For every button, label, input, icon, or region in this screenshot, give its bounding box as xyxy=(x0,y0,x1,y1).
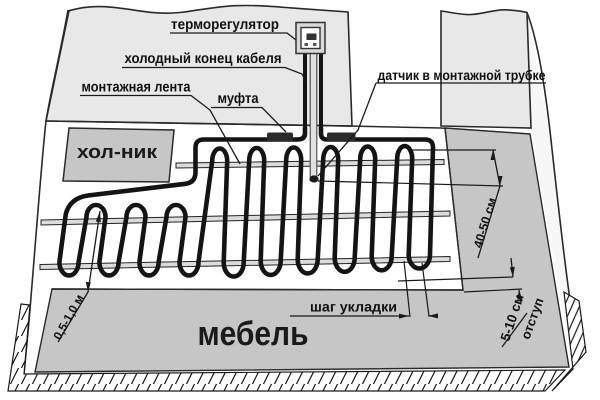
svg-text:мебель: мебель xyxy=(198,315,309,353)
svg-text:шаг укладки: шаг укладки xyxy=(310,299,397,315)
svg-text:датчик в монтажной трубке: датчик в монтажной трубке xyxy=(378,67,546,83)
svg-text:муфта: муфта xyxy=(218,91,260,107)
svg-text:холодный конец кабеля: холодный конец кабеля xyxy=(125,51,282,67)
svg-text:хол-ник: хол-ник xyxy=(77,142,158,163)
svg-text:терморегулятор: терморегулятор xyxy=(171,17,279,33)
svg-text:монтажная лента: монтажная лента xyxy=(82,80,192,96)
